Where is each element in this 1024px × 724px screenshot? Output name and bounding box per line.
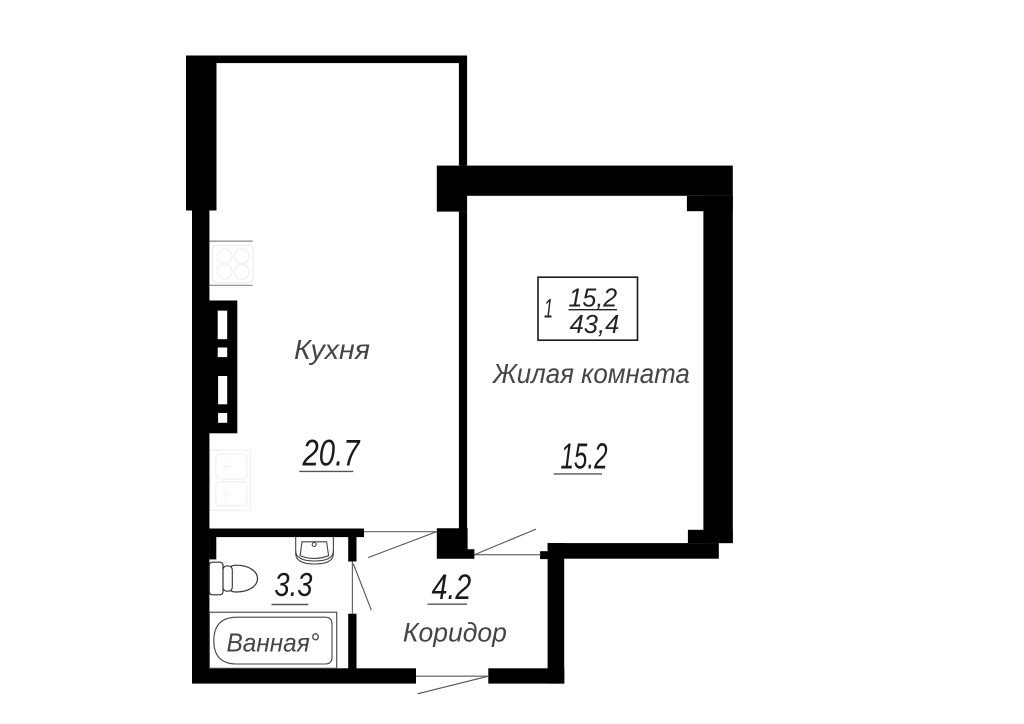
svg-text:15,2: 15,2: [569, 282, 618, 312]
svg-text:1: 1: [544, 294, 553, 324]
svg-text:3.3: 3.3: [274, 566, 313, 603]
svg-text:Кухня: Кухня: [294, 334, 370, 365]
svg-text:Ванная°: Ванная°: [227, 628, 320, 658]
svg-text:43,4: 43,4: [570, 309, 620, 339]
svg-text:Коридор: Коридор: [403, 618, 507, 648]
svg-text:4.2: 4.2: [432, 568, 472, 607]
svg-text:20.7: 20.7: [302, 433, 361, 474]
svg-text:15.2: 15.2: [561, 435, 608, 476]
svg-text:Жилая комната: Жилая комната: [491, 358, 690, 389]
